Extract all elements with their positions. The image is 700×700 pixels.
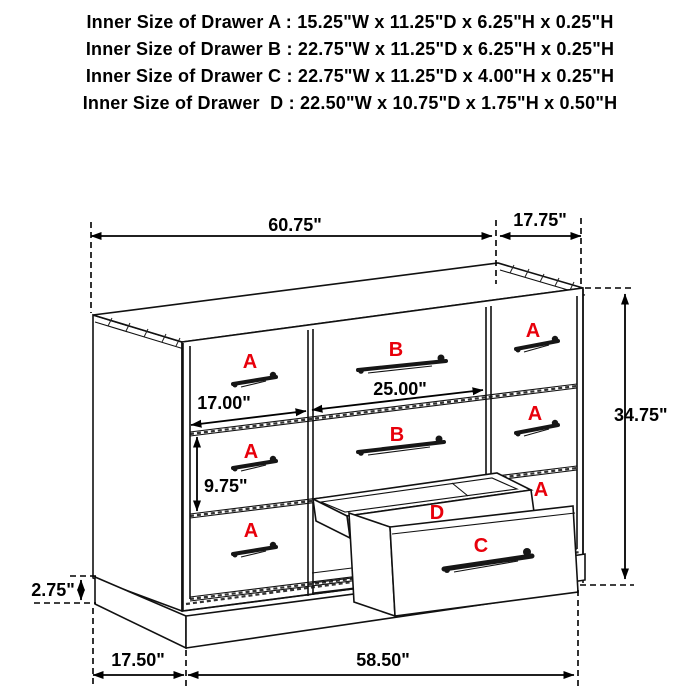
dresser-dimension-drawing: A A A B B A A A D C 60.75" 17.75" 34.75"… [0,0,700,700]
label-drawer-b-2: B [390,424,404,446]
dim-base-width: 58.50" [356,650,410,670]
label-drawer-a-right-2: A [528,403,542,425]
drawer-c-left-side [349,513,395,616]
dim-base-height: 2.75" [31,580,75,600]
dim-overall-width: 60.75" [268,215,322,235]
label-drawer-a-left-1: A [243,351,257,373]
dim-base-depth: 17.50" [111,650,165,670]
label-drawer-a-right-3: A [534,479,548,501]
label-drawer-c: C [474,535,488,557]
label-drawer-a-left-2: A [244,441,258,463]
label-drawer-a-left-3: A [244,520,258,542]
label-drawer-d: D [430,502,444,524]
dim-drawer-a-height: 9.75" [204,476,248,496]
dim-height: 34.75" [614,405,668,425]
side-panel-left [93,315,182,611]
dim-top-depth: 17.75" [513,210,567,230]
dim-drawer-b-width: 25.00" [373,379,427,399]
label-drawer-a-right-1: A [526,320,540,342]
label-drawer-b-1: B [389,339,403,361]
dim-drawer-a-width: 17.00" [197,393,251,413]
